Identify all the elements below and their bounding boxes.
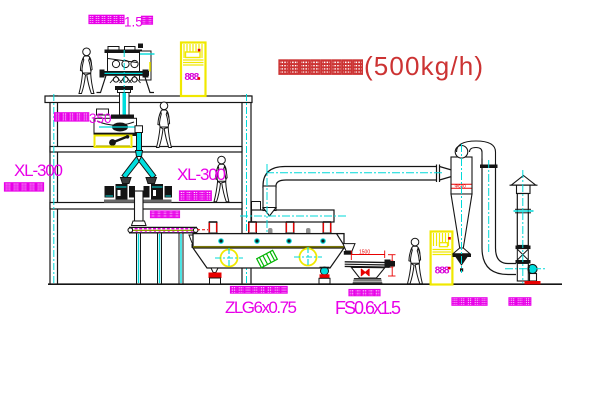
svg-text:1500: 1500 bbox=[359, 249, 370, 255]
svg-text:350: 350 bbox=[89, 111, 112, 126]
svg-text:Φ600: Φ600 bbox=[455, 184, 467, 189]
svg-text:ZLG6x0.75: ZLG6x0.75 bbox=[225, 298, 297, 317]
svg-text:XL-300: XL-300 bbox=[177, 165, 226, 184]
svg-text:888: 888 bbox=[185, 72, 200, 83]
svg-text:XL-300: XL-300 bbox=[14, 161, 63, 180]
svg-text:1.5: 1.5 bbox=[124, 15, 143, 30]
svg-text:888: 888 bbox=[435, 266, 450, 277]
svg-text:FS0.6x1.5: FS0.6x1.5 bbox=[335, 298, 401, 318]
svg-text:(500kg/h): (500kg/h) bbox=[364, 51, 483, 81]
